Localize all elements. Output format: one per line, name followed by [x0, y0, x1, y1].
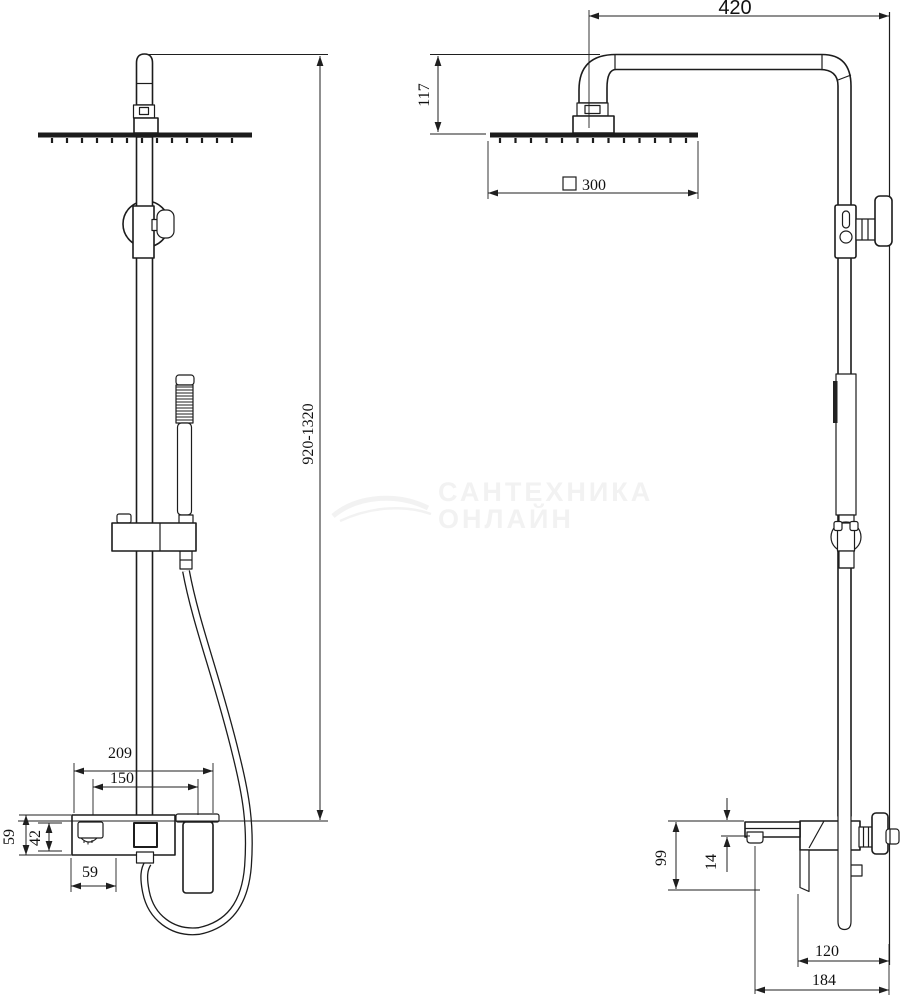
dim-arm-drop: 117 [416, 83, 433, 106]
technical-drawing-page: САНТЕХНИКА ОНЛАЙН [0, 0, 902, 1000]
diverter-bracket [133, 206, 174, 258]
dim-spout-section-width: 59 [82, 864, 98, 881]
watermark: САНТЕХНИКА ОНЛАЙН [333, 477, 653, 534]
dim-head-size: 300 [582, 177, 606, 194]
shower-arm-and-riser [579, 55, 851, 817]
dim-height-range: 920-1320 [300, 403, 317, 464]
top-pipe-front [134, 54, 159, 133]
watermark-line2: ОНЛАЙН [438, 503, 574, 534]
head-mount-front [134, 118, 158, 133]
diverter-knob [157, 210, 174, 238]
shower-system-drawing: САНТЕХНИКА ОНЛАЙН [0, 0, 902, 1000]
dim-mounting-centers: 150 [110, 770, 134, 787]
mixer-lever-side [800, 850, 809, 892]
spout-outlet-side [747, 832, 763, 843]
overhead-shower-side [490, 133, 698, 144]
dim-handle-depth: 120 [815, 943, 839, 960]
hand-shower-ribs-side [833, 381, 838, 423]
handle-knob-side [886, 829, 899, 844]
nozzles-side [500, 138, 686, 143]
dim-arm-reach: 420 [718, 0, 751, 19]
hand-shower-side [831, 374, 861, 568]
hose-outlet-front [134, 823, 157, 847]
dim-spout-body-height: 42 [27, 830, 44, 846]
dim-mixer-width: 209 [108, 745, 132, 762]
hand-shower-handle [178, 423, 192, 515]
dim-mixer-height: 59 [1, 829, 18, 845]
nozzles-front [52, 138, 232, 143]
slider-release-button [117, 514, 131, 523]
dim-spout-drop: 99 [653, 850, 670, 866]
mixer-side [745, 813, 899, 892]
head-mount-side [573, 103, 614, 133]
mixer-spout-front [78, 822, 103, 838]
hose-nut-front [137, 852, 154, 863]
dim-total-depth: 184 [812, 972, 836, 989]
hose-loop-side [838, 760, 851, 930]
front-view [38, 54, 252, 931]
dim-spout-lip: 14 [703, 854, 720, 870]
wall-bracket-side [835, 196, 892, 258]
mixer-lever-front [183, 822, 213, 893]
wall-plate-disc [875, 196, 892, 246]
watermark-line1: САНТЕХНИКА [438, 477, 653, 507]
square-symbol [563, 177, 576, 190]
